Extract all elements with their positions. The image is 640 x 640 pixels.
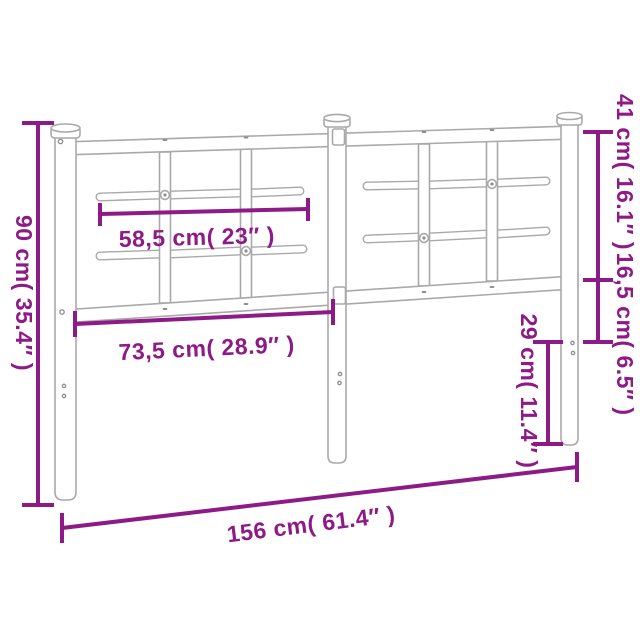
dimension-line-inner-bar-width xyxy=(100,198,308,226)
label-upper-section-height: 41 cm( 16.1″ ) xyxy=(612,94,638,250)
label-leg-height: 29 cm( 11.4″ ) xyxy=(516,314,542,469)
dimension-line-upper-right xyxy=(583,132,613,342)
center-post xyxy=(324,114,350,463)
label-height-total: 90 cm( 35.4″ ) xyxy=(11,215,37,371)
label-mid-section-height: 16,5 cm( 6.5″ ) xyxy=(612,253,638,416)
label-total-width: 156 cm( 61.4″ ) xyxy=(225,501,396,547)
right-post xyxy=(557,113,582,446)
label-panel-width: 73,5 cm( 28.9″ ) xyxy=(118,331,295,365)
product-dimension-diagram: 90 cm( 35.4″ ) 41 cm( 16.1″ ) 16,5 cm( 6… xyxy=(0,0,640,640)
bottom-rail xyxy=(62,276,573,323)
headboard-dimension-drawing: 90 cm( 35.4″ ) 41 cm( 16.1″ ) 16,5 cm( 6… xyxy=(0,0,640,640)
label-inner-bar-width: 58,5 cm( 23″ ) xyxy=(118,222,275,252)
headboard-frame xyxy=(51,113,582,501)
